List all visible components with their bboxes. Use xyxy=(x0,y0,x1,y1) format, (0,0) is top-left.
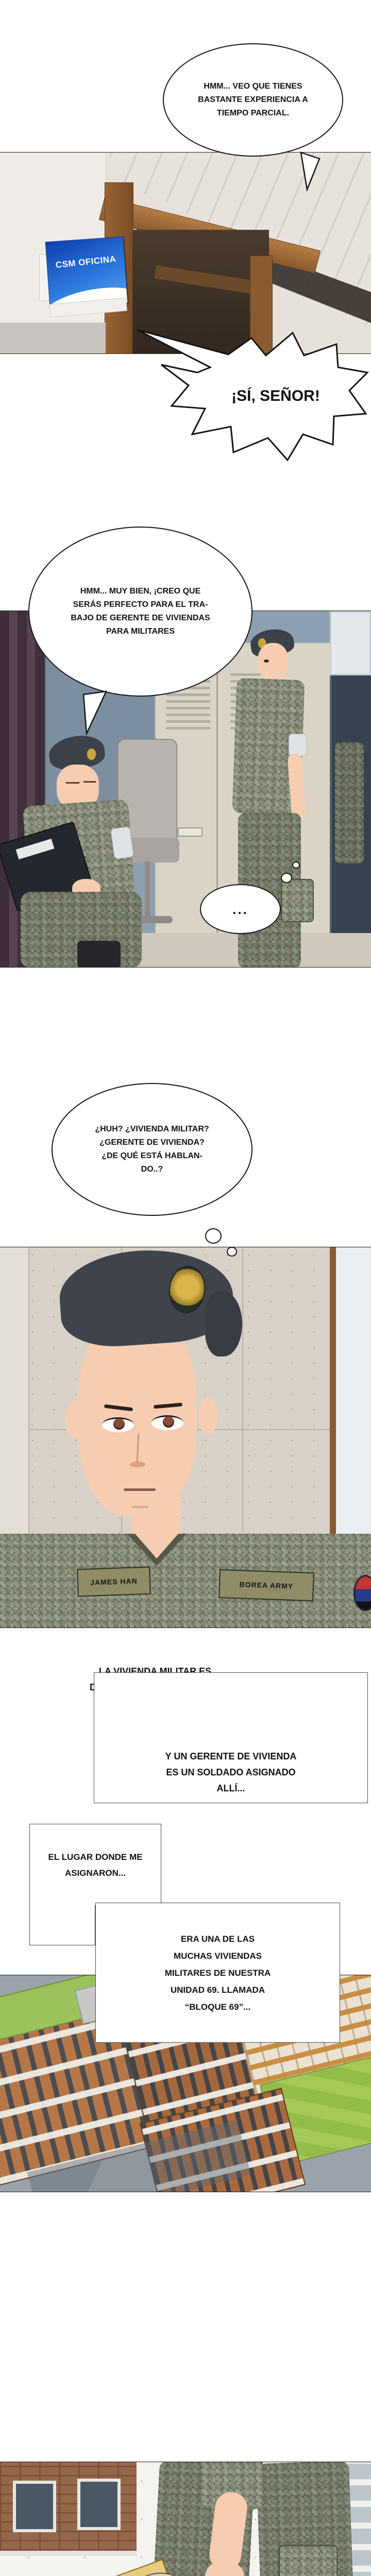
soldier-ear xyxy=(65,1401,83,1438)
caption-line: MILITARES DE NUESTRA xyxy=(165,1964,271,1981)
name-tag-text: JAMES HAN xyxy=(90,1577,138,1586)
seated-soldier-armband xyxy=(110,826,134,860)
soldier-iris xyxy=(113,1418,125,1430)
rope-handles xyxy=(77,2555,252,2576)
bubble-line: DO..? xyxy=(141,1163,163,1176)
soldier-chin-crease xyxy=(132,1506,148,1508)
standing-soldier-rolled-sleeve xyxy=(289,734,307,756)
soldier-nose-shade xyxy=(130,1462,145,1467)
soldier-shoulders xyxy=(0,1534,371,1628)
caption-line: UNIDAD 69. LLAMADA xyxy=(171,1981,265,1998)
bubble-line: TIEMPO PARCIAL. xyxy=(217,107,289,120)
bubble-line: SERÁS PERFECTO PARA EL TRA- xyxy=(73,598,208,612)
bubble-line: PARA MILITARES xyxy=(106,625,175,638)
caption-line: EL LUGAR DONDE ME xyxy=(48,1849,143,1865)
caption-box-3-step xyxy=(29,1905,95,1945)
caption-box-4: ERA UNA DE LAS MUCHAS VIVIENDAS MILITARE… xyxy=(95,1903,340,2043)
seated-soldier-boot xyxy=(77,941,121,968)
panel-face-closeup: JAMES HAN BOREA ARMY xyxy=(0,1247,371,1628)
hanging-camo-jacket xyxy=(335,742,364,863)
bubble-line: ... xyxy=(232,903,248,916)
soldier-iris xyxy=(163,1416,174,1428)
hallway-lower-wall xyxy=(0,323,106,354)
standing-soldier-eye xyxy=(264,659,269,663)
office-chair-post xyxy=(145,861,150,918)
bubble-tail xyxy=(298,150,322,192)
caption-line: ES UN SOLDADO ASIGNADO xyxy=(166,1765,295,1781)
seated-soldier-beret-badge xyxy=(87,748,96,760)
locker-handle xyxy=(178,827,203,837)
seated-soldier-eyes-closed xyxy=(66,782,79,784)
soldier-mouth xyxy=(124,1488,156,1491)
window-frame xyxy=(330,611,371,675)
sign-label: CSM OFICINA xyxy=(47,253,125,272)
caption-line: Y UN GERENTE DE VIVIENDA xyxy=(165,1749,297,1765)
burst-text: ¡SÍ, SEÑOR! xyxy=(201,387,350,405)
caption-line: ERA UNA DE LAS xyxy=(181,1930,255,1947)
thought-trail-circle xyxy=(205,1228,222,1244)
name-tag-left: JAMES HAN xyxy=(77,1567,151,1597)
speech-bubble-interviewer-1: HMM... VEO QUE TIENES BASTANTE EXPERIENC… xyxy=(163,43,343,157)
soldier-beret-drape xyxy=(205,1292,242,1357)
cargo-pocket xyxy=(278,2545,338,2576)
bubble-line: ¿HUH? ¿VIVIENDA MILITAR? xyxy=(95,1123,209,1136)
soldier-ear xyxy=(199,1398,217,1435)
caption-line: ASIGNARON... xyxy=(65,1865,126,1881)
building-window xyxy=(13,2481,56,2532)
bubble-line: ¡SÍ, SEÑOR! xyxy=(231,387,320,404)
name-tag-right: BOREA ARMY xyxy=(218,1569,314,1601)
thought-trail-circle xyxy=(281,873,292,883)
thought-trail-circle xyxy=(292,861,300,869)
caption-line: ALLÍ... xyxy=(217,1781,245,1797)
webtoon-page: CSM OFICINA HMM... VEO QUE TIENES BASTAN… xyxy=(0,0,371,2576)
bubble-line: ¿DE QUÉ ESTÁ HABLAN- xyxy=(102,1149,203,1163)
seated-soldier-eyes-closed xyxy=(83,781,96,783)
standing-soldier-cargo-pocket xyxy=(281,879,314,922)
office-sign: CSM OFICINA xyxy=(45,236,128,309)
bubble-tail xyxy=(81,688,110,736)
building-window xyxy=(77,2479,121,2530)
speech-bubble-interviewer-2: HMM... MUY BIEN, ¡CREO QUE SERÁS PERFECT… xyxy=(28,527,252,697)
caption-box-2: Y UN GERENTE DE VIVIENDA ES UN SOLDADO A… xyxy=(94,1672,368,1803)
thought-bubble-ellipsis: ... xyxy=(200,884,281,934)
caption-line: MUCHAS VIVIENDAS xyxy=(174,1947,262,1964)
bubble-line: HMM... MUY BIEN, ¡CREO QUE xyxy=(80,585,201,598)
name-tag-text: BOREA ARMY xyxy=(239,1580,293,1590)
bubble-line: HMM... VEO QUE TIENES xyxy=(204,80,302,93)
caption-box-3: EL LUGAR DONDE ME ASIGNARON... xyxy=(29,1824,161,1906)
standing-soldier-head xyxy=(258,643,289,681)
thought-bubble-confused: ¿HUH? ¿VIVIENDA MILITAR? ¿GERENTE DE VIV… xyxy=(52,1083,252,1216)
bubble-line: BASTANTE EXPERIENCIA A xyxy=(198,93,308,107)
bubble-line: BAJO DE GERENTE DE VIVIENDAS xyxy=(71,612,210,625)
caption-line: “BLOQUE 69”... xyxy=(185,1998,251,2015)
thought-trail-circle xyxy=(227,1247,237,1257)
panel-dripping-box xyxy=(0,2462,371,2576)
bubble-line: ¿GERENTE DE VIVIENDA? xyxy=(99,1136,205,1149)
